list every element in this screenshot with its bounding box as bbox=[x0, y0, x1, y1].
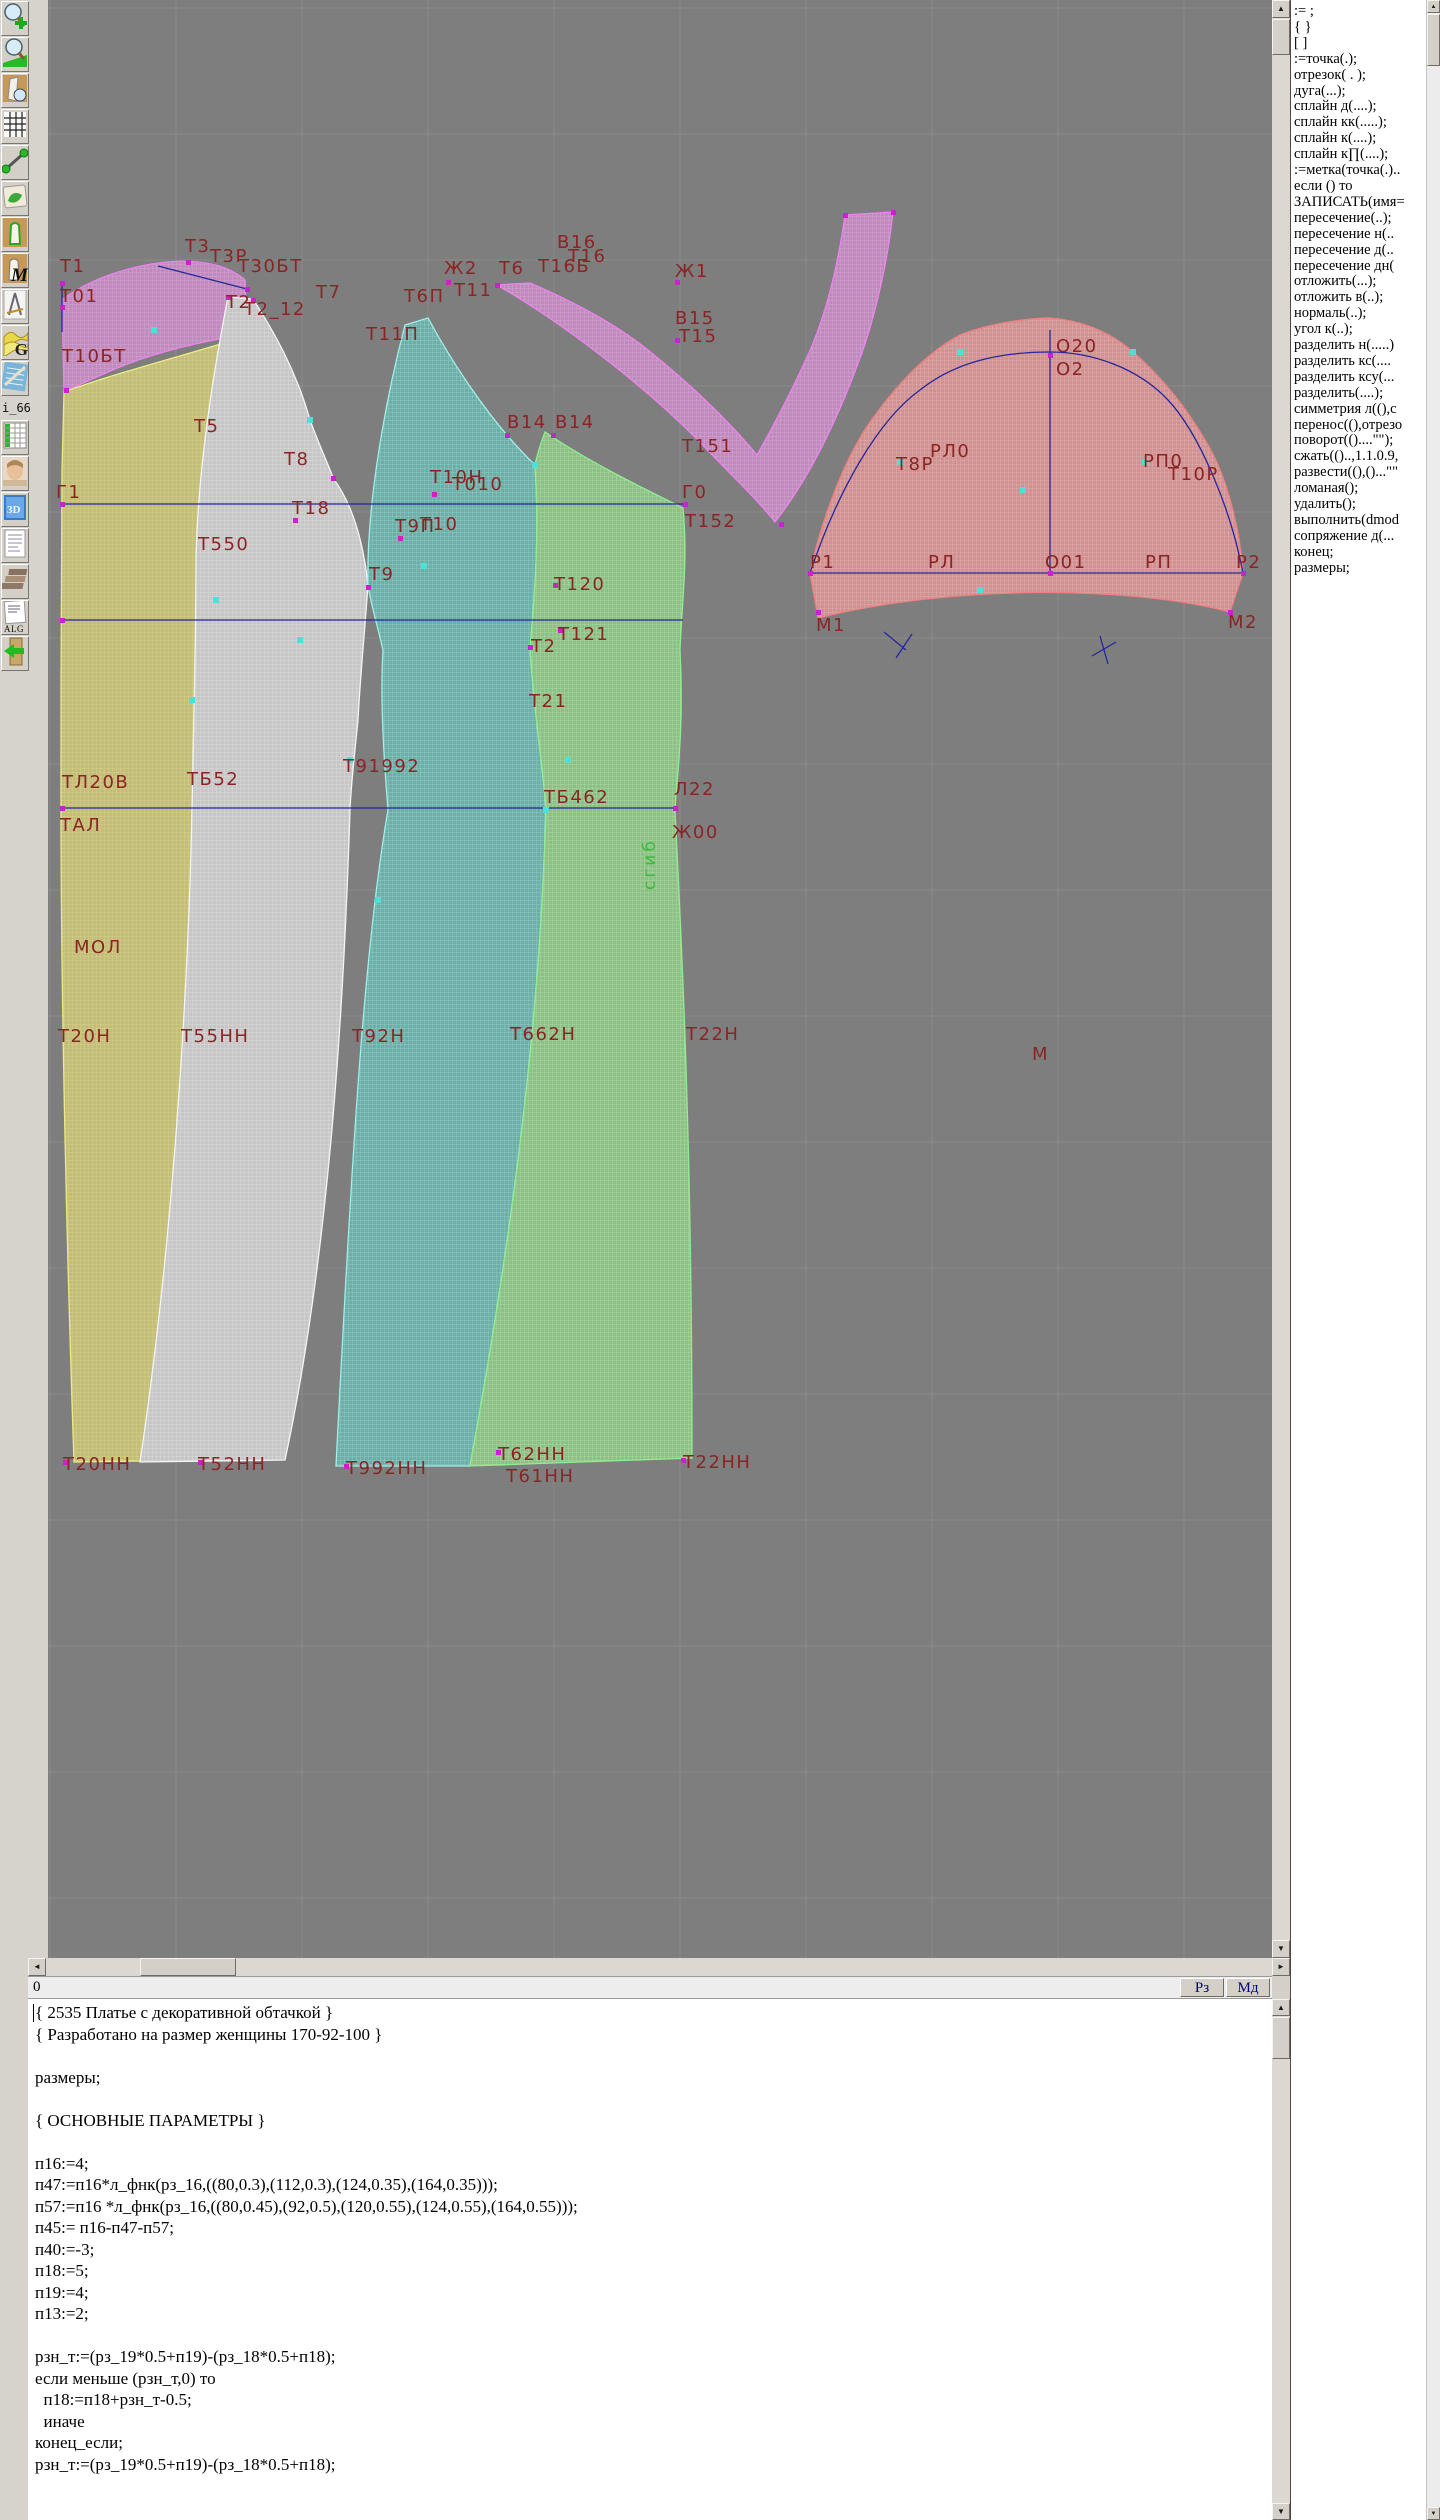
code-line: иначе bbox=[35, 2411, 1272, 2433]
command-item[interactable]: разделить ксу(... bbox=[1291, 370, 1426, 386]
command-item[interactable]: выполнить(dmod bbox=[1291, 513, 1426, 529]
point-label: Г0 bbox=[682, 482, 707, 503]
3d-icon bbox=[2, 492, 28, 527]
point-marker[interactable] bbox=[307, 417, 313, 423]
code-line: п19:=4; bbox=[35, 2282, 1272, 2304]
point-label: Т20НН bbox=[62, 1454, 131, 1475]
code-line: конец_если; bbox=[35, 2432, 1272, 2454]
g-curves-icon bbox=[2, 325, 28, 360]
point-label: ТБ462 bbox=[543, 787, 609, 808]
point-label: Т91992 bbox=[342, 756, 420, 777]
point-label: Ж00 bbox=[672, 822, 719, 843]
command-item[interactable]: если () то bbox=[1291, 179, 1426, 195]
point-marker[interactable] bbox=[60, 806, 65, 811]
point-label: М bbox=[1032, 1044, 1049, 1065]
code-line bbox=[35, 2088, 1272, 2110]
point-label: Т152 bbox=[684, 511, 736, 532]
point-marker[interactable] bbox=[421, 563, 427, 569]
i66-label[interactable]: i_66. bbox=[1, 397, 31, 419]
point-label: Р1 bbox=[810, 552, 835, 573]
code-line: рзн_т:=(рз_19*0.5+п19)-(рз_18*0.5+п18); bbox=[35, 2454, 1272, 2476]
point-label: РЛ0 bbox=[930, 441, 970, 462]
command-item[interactable]: разделить н(.....) bbox=[1291, 338, 1426, 354]
books-button[interactable] bbox=[1, 564, 29, 599]
code-line: если меньше (рзн_т,0) то bbox=[35, 2368, 1272, 2390]
point-label: Т11 bbox=[453, 280, 492, 301]
zoom-in-button[interactable] bbox=[1, 1, 29, 36]
command-item[interactable]: развести((),()..."" bbox=[1291, 465, 1426, 481]
blueprint-icon bbox=[2, 361, 28, 396]
command-item[interactable]: пересечение дн( bbox=[1291, 259, 1426, 275]
command-item[interactable]: размеры; bbox=[1291, 561, 1426, 577]
panel-scroll-down-button[interactable]: ▼ bbox=[1427, 2507, 1440, 2520]
point-marker[interactable] bbox=[532, 462, 538, 468]
point-marker[interactable] bbox=[1020, 487, 1026, 493]
list-icon bbox=[2, 528, 28, 563]
point-label: Т151 bbox=[681, 436, 733, 457]
canvas-vscrollbar[interactable]: ▲ ▼ bbox=[1272, 0, 1290, 1958]
drafting-tools-icon bbox=[2, 289, 28, 324]
command-item[interactable]: разделить кс(.... bbox=[1291, 354, 1426, 370]
canvas-hscrollbar[interactable]: ◄ ► bbox=[28, 1958, 1290, 1976]
pattern-m-icon bbox=[2, 253, 28, 288]
photo-button[interactable] bbox=[1, 456, 29, 491]
alg-icon bbox=[2, 600, 28, 635]
point-label: Ж1 bbox=[675, 261, 709, 282]
point-label: Т6 bbox=[498, 258, 524, 279]
code-line: { Разработано на размер женщины 170-92-1… bbox=[35, 2024, 1272, 2046]
command-item[interactable]: перенос((),отрезо bbox=[1291, 418, 1426, 434]
scroll-up-button[interactable]: ▲ bbox=[1272, 0, 1290, 18]
point-label: Т16 bbox=[567, 246, 606, 267]
point-marker[interactable] bbox=[843, 213, 848, 218]
point-marker[interactable] bbox=[551, 433, 556, 438]
point-label: Г1 bbox=[56, 482, 81, 503]
command-item[interactable]: разделить(....); bbox=[1291, 386, 1426, 402]
point-label: Т22НН bbox=[682, 1452, 751, 1473]
point-label: МОЛ bbox=[74, 937, 122, 958]
scroll-left-button[interactable]: ◄ bbox=[28, 1958, 46, 1976]
pattern-outline-button[interactable] bbox=[1, 217, 29, 252]
command-item[interactable]: угол к(..); bbox=[1291, 322, 1426, 338]
code-editor[interactable]: { 2535 Платье с декоративной обтачкой }{… bbox=[28, 1999, 1272, 2520]
point-label: Т30БТ bbox=[237, 256, 303, 277]
point-label: Т20Н bbox=[57, 1026, 111, 1047]
command-item[interactable]: сплайн к(....); bbox=[1291, 131, 1426, 147]
point-marker[interactable] bbox=[891, 210, 896, 215]
point-marker[interactable] bbox=[186, 260, 191, 265]
command-item[interactable]: сплайн к∏(....); bbox=[1291, 147, 1426, 163]
editor-ruler: 0 Рз Мд bbox=[28, 1976, 1272, 1999]
scroll-down-button[interactable]: ▼ bbox=[1272, 1940, 1290, 1958]
pattern-drawing: Т1Т01Т10БТТ3Т3РТ30БТТ2Т2_12Т7Т5Т8Т18Т550… bbox=[48, 0, 1272, 1958]
point-label: Т10БТ bbox=[61, 346, 127, 367]
code-line: { ОСНОВНЫЕ ПАРАМЕТРЫ } bbox=[35, 2110, 1272, 2132]
code-line: п18:=5; bbox=[35, 2260, 1272, 2282]
point-label: В14 bbox=[507, 412, 547, 433]
books-icon bbox=[2, 564, 28, 599]
point-marker[interactable] bbox=[213, 597, 219, 603]
command-panel: := ;{ }[ ]:=точка(.);отрезок( . );дуга(.… bbox=[1290, 0, 1426, 2520]
drawing-canvas[interactable]: Т1Т01Т10БТТ3Т3РТ30БТТ2Т2_12Т7Т5Т8Т18Т550… bbox=[48, 0, 1272, 1958]
toolbar: M G i_66. 3D ALG bbox=[0, 0, 31, 672]
point-marker[interactable] bbox=[446, 280, 451, 285]
point-marker[interactable] bbox=[779, 522, 784, 527]
point-label: Т7 bbox=[315, 282, 341, 303]
point-label: Ж2 bbox=[444, 258, 478, 279]
point-label: Т18 bbox=[291, 498, 330, 519]
code-line: п47:=п16*л_фнк(рз_16,((80,0.3),(112,0.3)… bbox=[35, 2174, 1272, 2196]
text-caret bbox=[33, 2004, 34, 2022]
point-label: Т01 bbox=[59, 286, 98, 307]
pattern-m-button[interactable]: M bbox=[1, 253, 29, 288]
point-label: Т21 bbox=[528, 691, 567, 712]
point-label: О2 bbox=[1056, 359, 1085, 380]
command-item[interactable]: отрезок( . ); bbox=[1291, 68, 1426, 84]
point-label: Т662Н bbox=[509, 1024, 576, 1045]
command-item[interactable]: :=метка(точка(.).. bbox=[1291, 163, 1426, 179]
point-label: ТЛ20В bbox=[61, 772, 129, 793]
point-label: Т15 bbox=[678, 326, 717, 347]
view-pattern-button[interactable] bbox=[1, 73, 29, 108]
map-icon bbox=[2, 181, 28, 216]
code-line: п16:=4; bbox=[35, 2153, 1272, 2175]
command-item[interactable]: удалить(); bbox=[1291, 497, 1426, 513]
code-line bbox=[35, 2045, 1272, 2067]
command-item[interactable]: поворот(()....""); bbox=[1291, 433, 1426, 449]
drafting-tools-button[interactable] bbox=[1, 289, 29, 324]
command-item[interactable]: { } bbox=[1291, 20, 1426, 36]
point-marker[interactable] bbox=[64, 388, 69, 393]
point-label: Т9 bbox=[368, 564, 394, 585]
map-button[interactable] bbox=[1, 181, 29, 216]
point-label: Т010 bbox=[451, 474, 503, 495]
command-item[interactable]: дуга(...); bbox=[1291, 84, 1426, 100]
command-item[interactable]: конец; bbox=[1291, 545, 1426, 561]
point-label: ТАЛ bbox=[59, 815, 101, 836]
command-item[interactable]: :=точка(.); bbox=[1291, 52, 1426, 68]
point-marker[interactable] bbox=[375, 897, 381, 903]
point-label: Л22 bbox=[674, 779, 715, 800]
point-label: ТБ52 bbox=[186, 769, 239, 790]
blueprint-button[interactable] bbox=[1, 361, 29, 396]
point-label: Т8 bbox=[283, 449, 309, 470]
segment-icon bbox=[2, 145, 28, 180]
command-list: := ;{ }[ ]:=точка(.);отрезок( . );дуга(.… bbox=[1291, 0, 1426, 577]
point-label: Т120 bbox=[553, 574, 605, 595]
code-line: п57:=п16 *л_фнк(рз_16,((80,0.45),(92,0.5… bbox=[35, 2196, 1272, 2218]
point-marker[interactable] bbox=[977, 587, 983, 593]
command-item[interactable]: отложить в(..); bbox=[1291, 290, 1426, 306]
point-label: Т10Р bbox=[1167, 464, 1219, 485]
point-marker[interactable] bbox=[60, 618, 65, 623]
point-label: Т6П bbox=[403, 286, 444, 307]
point-label: В14 bbox=[555, 412, 595, 433]
rz-button[interactable]: Рз bbox=[1180, 1978, 1224, 1997]
point-label: Т52НН bbox=[197, 1454, 266, 1475]
code-line: п13:=2; bbox=[35, 2303, 1272, 2325]
scroll-right-button[interactable]: ► bbox=[1272, 1958, 1290, 1976]
code-line: { 2535 Платье с декоративной обтачкой } bbox=[35, 2002, 1272, 2024]
point-marker[interactable] bbox=[432, 492, 437, 497]
code-line: п40:=-3; bbox=[35, 2239, 1272, 2261]
command-item[interactable]: пересечение н(.. bbox=[1291, 227, 1426, 243]
zoom-out-button[interactable] bbox=[1, 37, 29, 72]
point-marker[interactable] bbox=[673, 806, 678, 811]
zoom-out-icon bbox=[2, 37, 28, 72]
point-marker[interactable] bbox=[366, 585, 371, 590]
point-marker[interactable] bbox=[957, 349, 963, 355]
point-marker[interactable] bbox=[151, 327, 157, 333]
point-label: Т8Р bbox=[895, 454, 934, 475]
code-lines: { 2535 Платье с декоративной обтачкой }{… bbox=[28, 1999, 1272, 2475]
scrollbar-corner bbox=[1272, 1976, 1290, 1999]
point-label: М2 bbox=[1228, 612, 1258, 633]
code-line: п18:=п18+рзн_т-0.5; bbox=[35, 2389, 1272, 2411]
point-label: Т22Н bbox=[685, 1024, 739, 1045]
point-label: Т992НН bbox=[345, 1458, 427, 1479]
point-label: Т3 bbox=[184, 236, 210, 257]
command-item[interactable]: сплайн д(....); bbox=[1291, 99, 1426, 115]
panel-scrollbar[interactable]: ▲ ▼ bbox=[1426, 0, 1440, 2520]
vscroll-thumb[interactable] bbox=[1272, 19, 1290, 55]
point-marker[interactable] bbox=[495, 283, 500, 288]
pattern-outline-icon bbox=[2, 217, 28, 252]
grid-icon bbox=[2, 109, 28, 144]
command-item[interactable]: [ ] bbox=[1291, 36, 1426, 52]
code-line bbox=[35, 2131, 1272, 2153]
exit-icon bbox=[2, 636, 28, 671]
grid-button[interactable] bbox=[1, 109, 29, 144]
point-label: Т55НН bbox=[180, 1026, 249, 1047]
point-marker[interactable] bbox=[565, 757, 571, 763]
editor-scroll-thumb[interactable] bbox=[1272, 2017, 1290, 2059]
point-marker[interactable] bbox=[1048, 353, 1053, 358]
point-label: РП bbox=[1145, 552, 1172, 573]
view-pattern-icon bbox=[2, 73, 28, 108]
point-label: О01 bbox=[1045, 552, 1087, 573]
md-button[interactable]: Мд bbox=[1226, 1978, 1270, 1997]
point-label: О20 bbox=[1056, 336, 1098, 357]
fold-label: сгиб bbox=[640, 838, 660, 890]
point-label: Р2 bbox=[1236, 552, 1261, 573]
list-button[interactable] bbox=[1, 528, 29, 563]
point-label: Т1 bbox=[59, 256, 85, 277]
command-item[interactable]: пересечение(..); bbox=[1291, 211, 1426, 227]
code-line: размеры; bbox=[35, 2067, 1272, 2089]
command-item[interactable]: ЗАПИСАТЬ(имя= bbox=[1291, 195, 1426, 211]
point-label: М1 bbox=[816, 615, 846, 636]
command-item[interactable]: отложить(...); bbox=[1291, 274, 1426, 290]
editor-scroll-down-button[interactable]: ▼ bbox=[1272, 2503, 1290, 2520]
portrait-icon bbox=[2, 456, 28, 491]
exit-button[interactable] bbox=[1, 636, 29, 671]
point-marker[interactable] bbox=[189, 697, 195, 703]
point-label: Т121 bbox=[557, 624, 609, 645]
command-item[interactable]: нормаль(..); bbox=[1291, 306, 1426, 322]
code-line: п45:= п16-п47-п57; bbox=[35, 2217, 1272, 2239]
3d-button[interactable]: 3D bbox=[1, 492, 29, 527]
command-item[interactable]: симметрия л((),с bbox=[1291, 402, 1426, 418]
point-label: РЛ bbox=[928, 552, 955, 573]
code-line bbox=[35, 2325, 1272, 2347]
editor-scroll-up-button[interactable]: ▲ bbox=[1272, 1999, 1290, 2016]
command-item[interactable]: сопряжение д(... bbox=[1291, 529, 1426, 545]
editor-scrollbar[interactable]: ▲ ▼ bbox=[1272, 1999, 1290, 2520]
g-curves-button[interactable]: G bbox=[1, 325, 29, 360]
command-item[interactable]: := ; bbox=[1291, 4, 1426, 20]
point-label: Т11П bbox=[365, 324, 419, 345]
command-item[interactable]: сплайн кк(.....); bbox=[1291, 115, 1426, 131]
table-icon bbox=[2, 420, 28, 455]
command-item[interactable]: сжать(()..,1.1.0.9, bbox=[1291, 449, 1426, 465]
segment-button[interactable] bbox=[1, 145, 29, 180]
zoom-in-icon bbox=[2, 1, 28, 36]
ruler-zero-label: 0 bbox=[33, 1979, 41, 1996]
panel-scroll-thumb[interactable] bbox=[1427, 14, 1440, 66]
table-button[interactable] bbox=[1, 420, 29, 455]
point-label: Т2_12 bbox=[243, 299, 306, 320]
point-label: Т61НН bbox=[505, 1466, 574, 1487]
point-marker[interactable] bbox=[297, 637, 303, 643]
point-marker[interactable] bbox=[505, 433, 510, 438]
point-label: Т550 bbox=[197, 534, 249, 555]
point-marker[interactable] bbox=[331, 476, 336, 481]
panel-scroll-up-button[interactable]: ▲ bbox=[1427, 0, 1440, 13]
command-item[interactable]: пересечение д(.. bbox=[1291, 243, 1426, 259]
point-label: Т5 bbox=[193, 416, 219, 437]
point-label: Т92Н bbox=[351, 1026, 405, 1047]
alg-button[interactable]: ALG bbox=[1, 600, 29, 635]
point-label: Т62НН bbox=[497, 1444, 566, 1465]
code-line: рзн_т:=(рз_19*0.5+п19)-(рз_18*0.5+п18); bbox=[35, 2346, 1272, 2368]
point-marker[interactable] bbox=[1130, 349, 1136, 355]
point-label: Т2 bbox=[530, 636, 556, 657]
command-item[interactable]: ломаная(); bbox=[1291, 481, 1426, 497]
hscroll-thumb[interactable] bbox=[140, 1958, 236, 1976]
point-label: Т10 bbox=[419, 514, 458, 535]
